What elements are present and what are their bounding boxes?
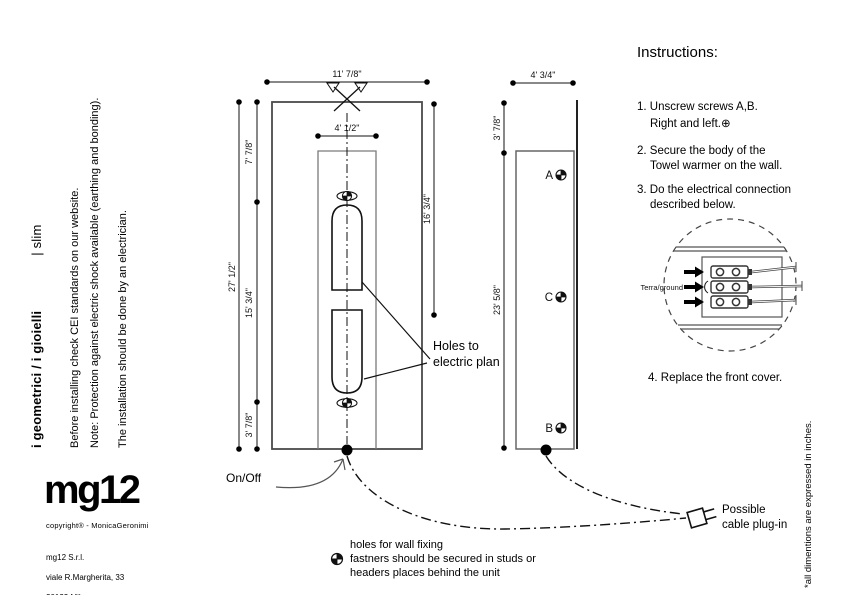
- terra-ground-label: Terra/ground: [640, 283, 683, 292]
- onoff-label: On/Off: [226, 471, 261, 485]
- instruction-step-1-line2: Right and left.⊕: [650, 116, 731, 130]
- screw-b-icon: [556, 423, 566, 433]
- side-dim-height-label: 23' 5/8": [492, 285, 502, 315]
- fastener-icon-top: [337, 191, 357, 200]
- product-title-bold: i geometrici / i gioielli: [29, 311, 44, 448]
- screw-a-label: A: [545, 170, 553, 182]
- screw-b-label: B: [545, 423, 553, 435]
- address-line: mg12 S.r.l.: [46, 553, 124, 563]
- side-view-drawing: 4' 3/4" 3' 7/8" 23' 5/8" A C B: [492, 70, 577, 456]
- dim-mid-label: 15' 3/4": [244, 288, 254, 318]
- instruction-step-3-line2: described below.: [650, 199, 736, 211]
- dim-right-label: 16' 3/4": [422, 194, 432, 224]
- holes-leader-lines: [362, 282, 430, 379]
- wall-fixing-note-line2: fastners should be secured in studs or: [350, 553, 536, 565]
- screw-a-icon: [556, 170, 566, 180]
- onoff-arrowhead: [334, 459, 345, 470]
- product-title-vertical: i geometrici / i gioielli| slim: [29, 225, 44, 449]
- wall-fixing-note-line1: holes for wall fixing: [350, 539, 443, 551]
- units-note-vertical: *all dimentions are expressed in inches.: [803, 421, 814, 588]
- side-dim-width-label: 4' 3/4": [531, 70, 556, 80]
- fastener-icon-bottom: [337, 398, 357, 407]
- cable-from-side-view: [546, 456, 683, 514]
- dim-inner-width-label: 4' 1/2": [335, 123, 360, 133]
- front-dimension-lines: [239, 82, 434, 449]
- warning-note-3: The installation should be done by an el…: [117, 210, 129, 448]
- holes-label-line2: electric plan: [433, 355, 500, 369]
- product-variant-slim: | slim: [29, 225, 44, 256]
- side-dim-top-label: 3' 7/8": [492, 116, 502, 141]
- warning-note-2: Note: Protection against electric shock …: [89, 98, 101, 448]
- plug-label-line1: Possible: [722, 504, 765, 516]
- screw-c-label: C: [545, 292, 553, 304]
- copyright-line: copyright® - MonicaGeronimi: [46, 521, 149, 530]
- side-dimension-lines: [504, 83, 573, 448]
- dim-top-label: 7' 7/8": [244, 140, 254, 165]
- instruction-step-1-line1: 1. Unscrew screws A,B.: [637, 101, 758, 113]
- instruction-step-4: 4. Replace the front cover.: [648, 372, 782, 384]
- screw-c-icon: [556, 292, 566, 302]
- instruction-step-3-line1: 3. Do the electrical connection: [637, 184, 791, 196]
- address-line: viale R.Margherita, 33: [46, 573, 124, 583]
- dim-width-label: 11' 7/8": [332, 69, 361, 79]
- wire-entry-arrows: [684, 267, 704, 308]
- dim-height-label: 27' 1/2": [227, 262, 237, 292]
- center-mark-icon: [334, 87, 360, 111]
- cable-from-front-view: [347, 456, 686, 529]
- dim-bottom-label: 3' 7/8": [244, 413, 254, 438]
- mg12-logo: mg12: [44, 470, 139, 510]
- holes-label-line1: Holes to: [433, 339, 479, 353]
- cable-routing: [347, 456, 717, 529]
- onoff-switch-dot: [342, 445, 353, 456]
- warning-note-1: Before installing check CEI standards on…: [69, 188, 81, 448]
- instruction-step-2-line1: 2. Secure the body of the: [637, 145, 766, 157]
- side-cable-exit-dot: [541, 445, 552, 456]
- front-view-drawing: 11' 7/8" 4' 1/2" 27' 1/2" 7' 7/8" 15' 3/…: [227, 69, 437, 488]
- wall-fixing-screw-icon: [332, 554, 343, 565]
- instructions-heading: Instructions:: [637, 44, 718, 61]
- electrical-detail-circle: Terra/ground: [640, 219, 802, 351]
- terminal-blocks: [711, 266, 752, 308]
- plug-label-line2: cable plug-in: [722, 519, 787, 531]
- wall-fixing-note-line3: headers places behind the unit: [350, 567, 500, 579]
- center-mark-arrows: [327, 83, 367, 92]
- front-dimension-dots: [236, 79, 437, 452]
- instruction-step-2-line2: Towel warmer on the wall.: [650, 160, 782, 172]
- side-dimension-dots: [501, 80, 576, 451]
- instruction-sheet: 11' 7/8" 4' 1/2" 27' 1/2" 7' 7/8" 15' 3/…: [0, 0, 841, 595]
- company-address: mg12 S.r.l. viale R.Margherita, 33 20122…: [46, 543, 124, 595]
- onoff-pointer-arrow: [276, 459, 343, 488]
- cable-plug-icon: [687, 505, 717, 528]
